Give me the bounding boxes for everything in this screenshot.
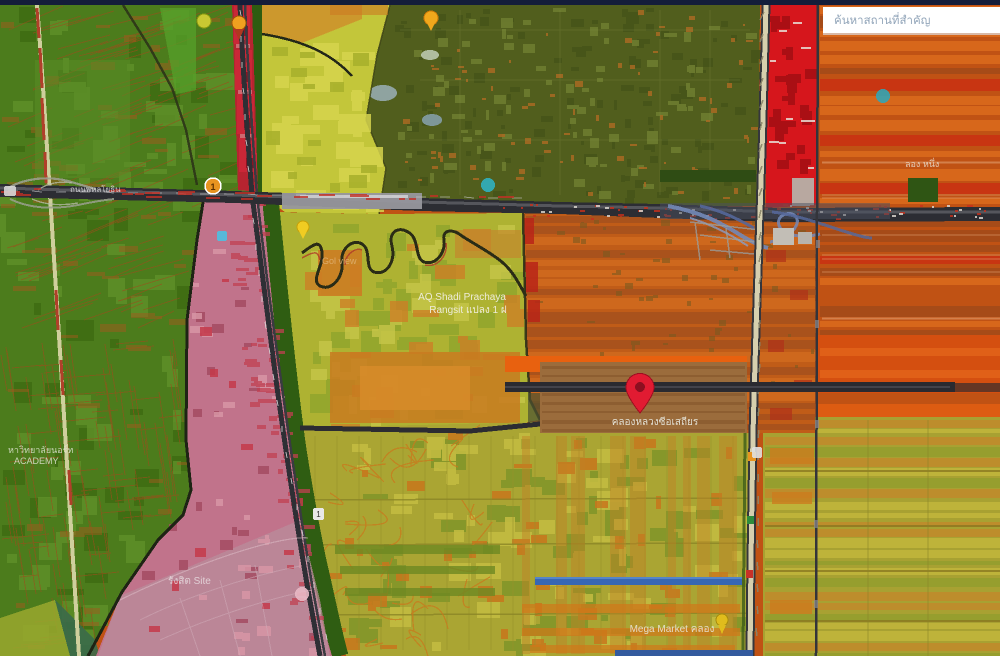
svg-text:Rangsit แปลง 1 ฝ: Rangsit แปลง 1 ฝ [429, 305, 507, 316]
svg-text:ACADEMY: ACADEMY [14, 456, 59, 466]
svg-text:Gol view: Gol view [322, 256, 357, 266]
svg-text:ถนนพหลโยธิน: ถนนพหลโยธิน [70, 184, 121, 194]
svg-text:รังสิต Site: รังสิต Site [168, 576, 211, 587]
svg-text:Mega Market คลอง: Mega Market คลอง [630, 624, 715, 635]
svg-text:คลองหลวงซีอเสถียร: คลองหลวงซีอเสถียร [612, 416, 699, 428]
svg-text:ค้นหาสถานที่สำคัญ: ค้นหาสถานที่สำคัญ [834, 12, 931, 27]
svg-text:1: 1 [210, 182, 215, 192]
svg-text:ลอง หนึ่ง: ลอง หนึ่ง [905, 157, 939, 169]
svg-text:หาวิทยาลัยนอร์ท: หาวิทยาลัยนอร์ท [8, 444, 73, 455]
svg-text:AQ Shadi Prachaya: AQ Shadi Prachaya [418, 292, 506, 303]
svg-text:1: 1 [316, 510, 321, 519]
